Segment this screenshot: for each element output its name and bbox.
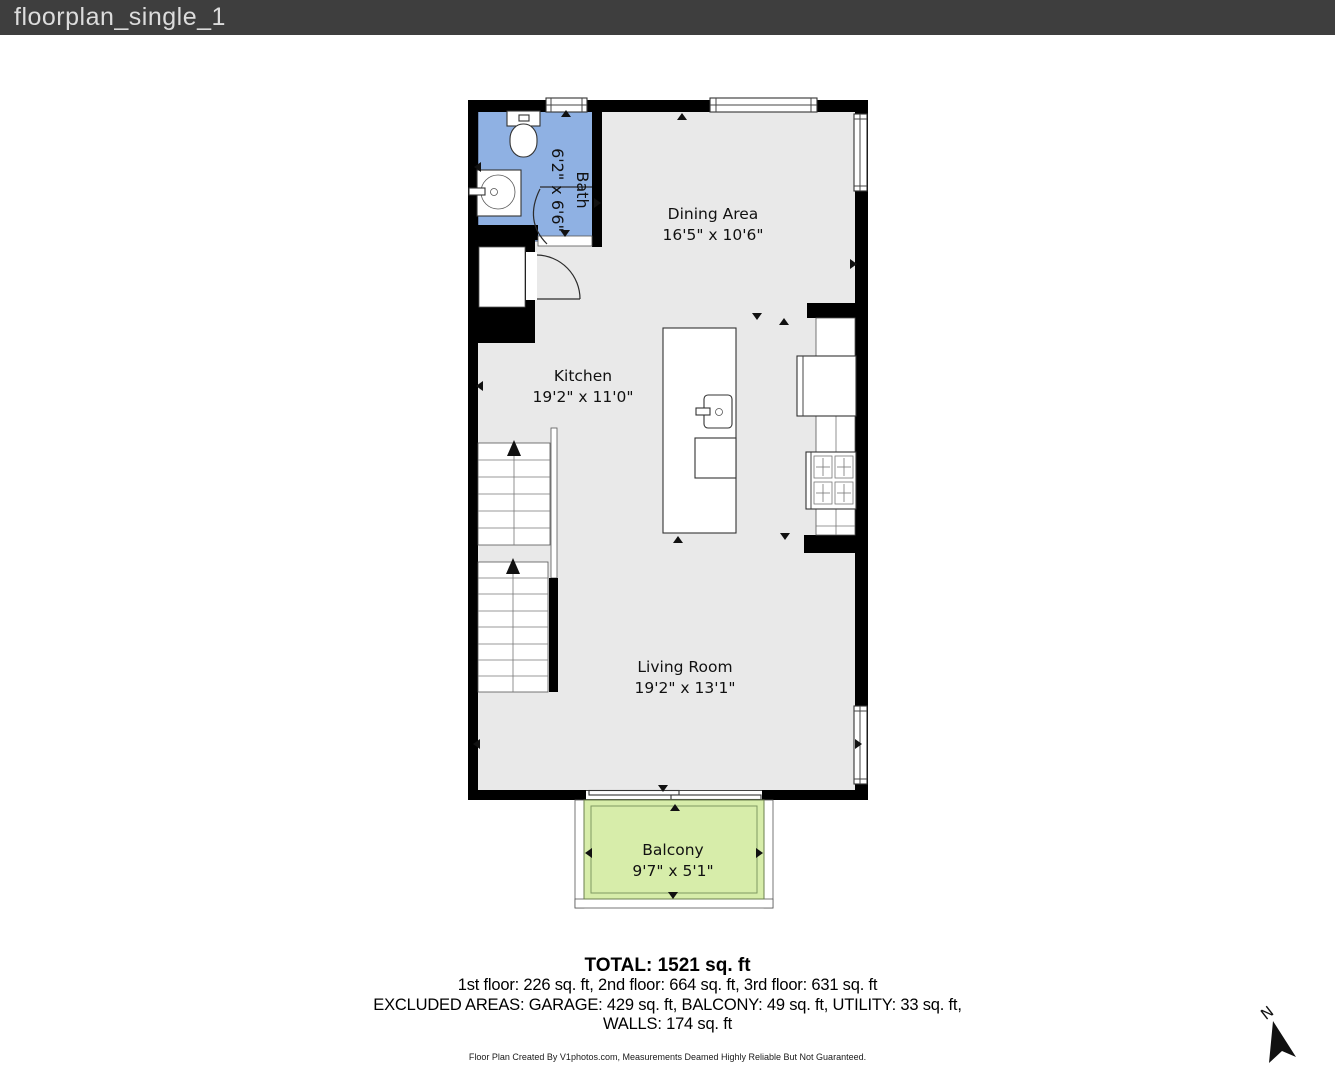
room-dims: 19'2" x 11'0" [483, 387, 683, 408]
stove-icon [806, 452, 856, 509]
room-name: Dining Area [613, 204, 813, 225]
total-area: TOTAL: 1521 sq. ft [0, 955, 1335, 976]
toilet-icon [507, 111, 540, 157]
room-dims: 16'5" x 10'6" [613, 225, 813, 246]
walls-area: WALLS: 174 sq. ft [0, 1015, 1335, 1035]
room-label-dining: Dining Area 16'5" x 10'6" [613, 204, 813, 246]
window-right-dining [854, 114, 867, 191]
disclaimer: Floor Plan Created By V1photos.com, Meas… [0, 1052, 1335, 1063]
sliding-door [586, 790, 762, 800]
floor-areas: 1st floor: 226 sq. ft, 2nd floor: 664 sq… [0, 976, 1335, 996]
kitchen-island [663, 328, 736, 533]
room-name: Bath [570, 130, 595, 250]
sink-icon [469, 170, 521, 216]
room-label-balcony: Balcony 9'7" x 5'1" [573, 840, 773, 882]
room-dims: 9'7" x 5'1" [573, 861, 773, 882]
closet [479, 247, 525, 307]
fridge-icon [797, 356, 856, 416]
dishwasher [695, 438, 736, 478]
room-label-kitchen: Kitchen 19'2" x 11'0" [483, 366, 683, 408]
room-dims: 19'2" x 13'1" [585, 678, 785, 699]
room-label-bath: Bath 6'2" x 6'6" [545, 130, 595, 250]
room-name: Balcony [573, 840, 773, 861]
room-name: Living Room [585, 657, 785, 678]
room-label-living: Living Room 19'2" x 13'1" [585, 657, 785, 699]
room-name: Kitchen [483, 366, 683, 387]
window-top-bath [546, 98, 587, 112]
excluded-areas: EXCLUDED AREAS: GARAGE: 429 sq. ft, BALC… [0, 996, 1335, 1016]
floorplan-drawing: N [0, 0, 1335, 1080]
area-summary: TOTAL: 1521 sq. ft 1st floor: 226 sq. ft… [0, 955, 1335, 1063]
room-dims: 6'2" x 6'6" [545, 130, 570, 250]
window-top-dining [710, 98, 817, 112]
